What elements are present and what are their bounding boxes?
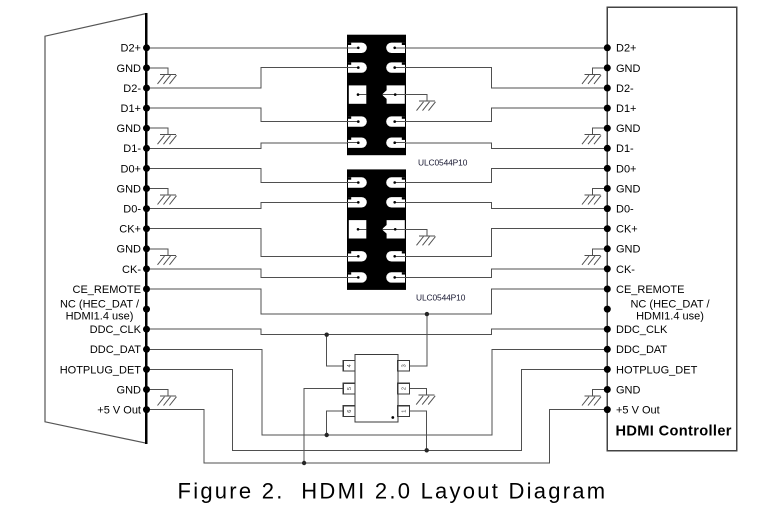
svg-text:5: 5 <box>347 387 353 390</box>
svg-text:GND: GND <box>117 123 142 135</box>
svg-text:D0+: D0+ <box>616 163 637 175</box>
svg-text:NC (HEC_DAT /: NC (HEC_DAT / <box>630 298 710 310</box>
svg-text:D1-: D1- <box>123 143 141 155</box>
svg-text:D1+: D1+ <box>121 103 142 115</box>
svg-text:GND: GND <box>616 63 641 75</box>
svg-text:6: 6 <box>347 410 353 413</box>
svg-text:GND: GND <box>117 183 142 195</box>
svg-text:2: 2 <box>402 387 408 390</box>
svg-text:CK+: CK+ <box>616 224 638 236</box>
svg-text:DDC_DAT: DDC_DAT <box>616 344 667 356</box>
svg-text:GND: GND <box>616 183 641 195</box>
svg-text:4: 4 <box>347 364 353 367</box>
svg-text:1: 1 <box>402 410 408 413</box>
svg-text:D1-: D1- <box>616 143 634 155</box>
svg-text:D1+: D1+ <box>616 103 637 115</box>
svg-text:+5 V Out: +5 V Out <box>97 405 141 417</box>
svg-text:GND: GND <box>616 123 641 135</box>
svg-text:D0-: D0- <box>123 204 141 216</box>
svg-text:GND: GND <box>616 244 641 256</box>
svg-text:DDC_DAT: DDC_DAT <box>90 344 141 356</box>
svg-text:HOTPLUG_DET: HOTPLUG_DET <box>60 364 142 376</box>
svg-text:3: 3 <box>402 364 408 367</box>
svg-text:ULC0544P10: ULC0544P10 <box>418 157 468 167</box>
svg-text:HDMI1.4 use): HDMI1.4 use) <box>66 310 134 322</box>
svg-text:Figure 2. HDMI 2.0 Layout Dia: Figure 2. HDMI 2.0 Layout Diagram <box>178 478 608 503</box>
svg-text:CE_REMOTE: CE_REMOTE <box>73 284 141 296</box>
svg-text:CK-: CK- <box>616 264 635 276</box>
svg-text:+5 V Out: +5 V Out <box>616 405 660 417</box>
svg-text:D0-: D0- <box>616 204 634 216</box>
svg-text:GND: GND <box>117 384 142 396</box>
svg-text:D2+: D2+ <box>616 43 637 55</box>
svg-text:DDC_CLK: DDC_CLK <box>90 324 142 336</box>
svg-text:CK-: CK- <box>122 264 141 276</box>
svg-text:CK+: CK+ <box>119 224 141 236</box>
svg-text:GND: GND <box>117 244 142 256</box>
svg-text:DDC_CLK: DDC_CLK <box>616 324 668 336</box>
svg-text:GND: GND <box>117 63 142 75</box>
svg-text:CE_REMOTE: CE_REMOTE <box>616 284 684 296</box>
svg-text:HDMI1.4 use): HDMI1.4 use) <box>636 310 704 322</box>
svg-text:D2-: D2- <box>616 83 634 95</box>
svg-text:HOTPLUG_DET: HOTPLUG_DET <box>616 364 698 376</box>
svg-text:D2-: D2- <box>123 83 141 95</box>
svg-text:D0+: D0+ <box>121 163 142 175</box>
svg-text:HDMI Controller: HDMI Controller <box>616 424 732 440</box>
svg-text:D2+: D2+ <box>121 43 142 55</box>
svg-text:NC (HEC_DAT /: NC (HEC_DAT / <box>60 298 140 310</box>
svg-text:ULC0544P10: ULC0544P10 <box>416 292 466 302</box>
svg-text:GND: GND <box>616 384 641 396</box>
